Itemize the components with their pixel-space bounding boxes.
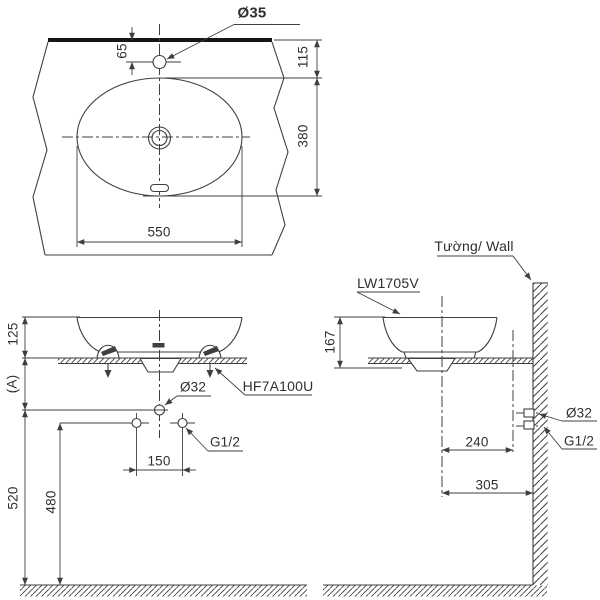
dim-supply-to-floor: 480 (44, 490, 58, 513)
drain-body-front (140, 359, 181, 373)
dim-edge-to-basin: 115 (296, 46, 310, 68)
label-faucet-hole-dia: Ø35 (238, 6, 267, 21)
top-view (33, 24, 322, 255)
label-drain-dia-side: Ø32 (566, 406, 592, 420)
dim-center-to-wall: 305 (475, 478, 498, 492)
dim-drain-to-floor: 520 (6, 486, 20, 509)
overflow-slot-plan (151, 185, 169, 192)
dim-basin-depth: 380 (296, 124, 310, 147)
overflow-front (153, 343, 165, 348)
wall-drain-fitting (524, 409, 534, 417)
dim-hole-to-edge: 65 (115, 43, 129, 58)
technical-drawing-canvas: Ø35 65 115 380 550 125 (A) 520 480 Ø32 H… (0, 0, 600, 600)
dim-counter-to-drain: (A) (5, 375, 19, 394)
label-drain-dia-front: Ø32 (180, 380, 206, 394)
label-supply-thread-side: G1/2 (564, 434, 594, 448)
label-wall: Tường/ Wall (434, 239, 513, 253)
wall-supply-fitting (524, 421, 534, 429)
label-supply-thread-front: G1/2 (210, 435, 240, 449)
drain-body-side (408, 359, 455, 372)
side-view (323, 256, 597, 597)
dim-supply-spacing: 150 (147, 454, 170, 468)
drawing-linework (0, 0, 600, 600)
wall (533, 283, 548, 585)
break-line-right (272, 42, 288, 255)
faucet-hole (153, 56, 166, 69)
label-bracket-model: HF7A100U (243, 379, 314, 393)
label-product-code: LW1705V (357, 276, 419, 290)
supply-hole-left (132, 419, 141, 428)
dim-basin-height: 167 (323, 330, 337, 353)
dim-rim-to-counter: 125 (6, 322, 20, 345)
dim-basin-width: 550 (147, 225, 170, 239)
break-line-left (33, 42, 48, 255)
dim-center-to-supply: 240 (465, 435, 488, 449)
supply-hole-right (178, 419, 187, 428)
